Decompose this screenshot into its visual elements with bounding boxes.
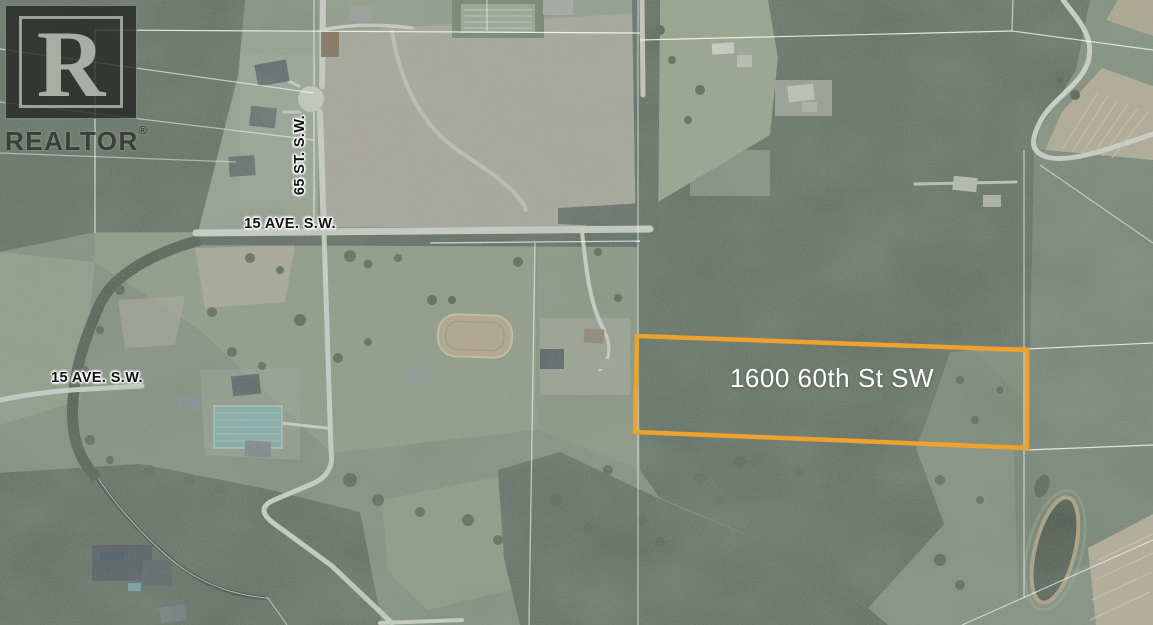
aerial-map: 65 ST. S.W. 15 AVE. S.W. 15 AVE. S.W. 16…	[0, 0, 1153, 625]
grain-noise	[0, 0, 1153, 625]
aerial-imagery	[0, 0, 1153, 625]
